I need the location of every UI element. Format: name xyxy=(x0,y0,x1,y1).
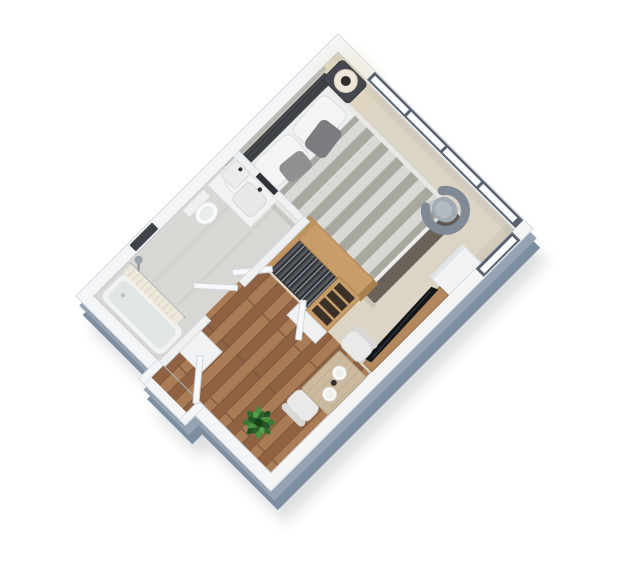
floor-plan-stage xyxy=(0,0,640,576)
floor-plan xyxy=(65,24,542,501)
floor-plan-canvas xyxy=(0,0,640,576)
